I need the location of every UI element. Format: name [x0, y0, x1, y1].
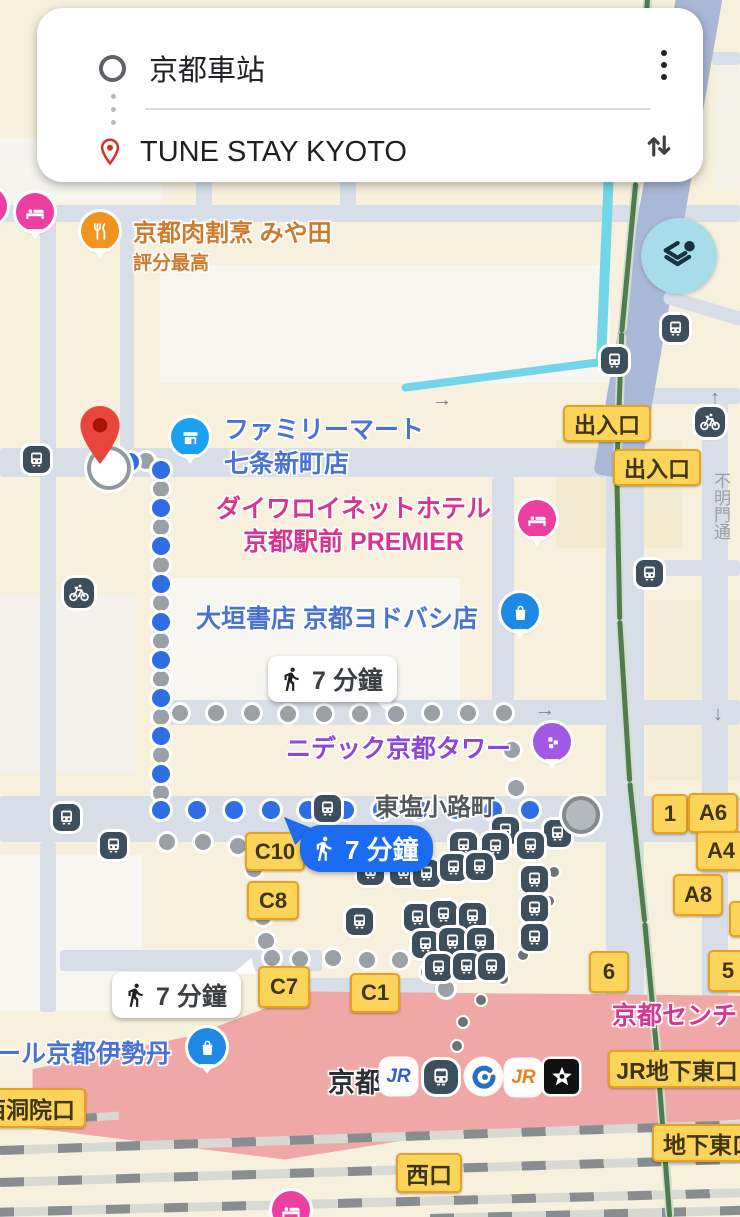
route-dot-alt [153, 709, 169, 725]
route-dot-alt [438, 981, 454, 997]
tower-pin[interactable] [533, 723, 571, 769]
route-dot-selected [152, 575, 170, 593]
railway-track [430, 1206, 740, 1217]
route-dot-alt [359, 952, 375, 968]
origin-row[interactable]: 京都車站 [37, 38, 703, 98]
bus-stop-icon[interactable] [100, 832, 127, 859]
gate-badge-c1[interactable]: C1 [350, 973, 400, 1013]
bus-stop-icon[interactable] [521, 866, 548, 893]
destination-input[interactable]: TUNE STAY KYOTO [140, 136, 407, 169]
hotel-pin-bottom-icon [272, 1191, 310, 1217]
route-dot-alt [195, 834, 211, 850]
route-dot-selected [225, 801, 243, 819]
route-dot-alt-small [476, 995, 486, 1005]
waypoint-dots [111, 94, 116, 125]
gate-badge-entrance-1[interactable]: 出入口 [563, 405, 651, 442]
road [340, 176, 356, 222]
route-dot-alt [258, 933, 274, 949]
gate-badge-underground-east-exit[interactable]: 地下東口 [652, 1124, 740, 1162]
poi-convenience-label[interactable]: ファミリーマート 七条新町店 [224, 414, 424, 482]
gate-badge-c7[interactable]: C7 [258, 966, 310, 1008]
road [712, 52, 740, 65]
route-dot-alt [352, 706, 368, 722]
route-dot-alt-small [549, 867, 559, 877]
route-dot-selected [521, 801, 539, 819]
bus-stop-icon[interactable] [23, 446, 50, 473]
one-way-arrow-icon: ↓ [713, 704, 723, 724]
route-dot-alt [496, 705, 512, 721]
gate-badge-entrance-2[interactable]: 出入口 [613, 449, 701, 486]
route-dot-alt [153, 671, 169, 687]
one-way-arrow-icon: ↑ [710, 388, 720, 408]
route-dot-selected [152, 613, 170, 631]
destination-row[interactable]: TUNE STAY KYOTO [37, 122, 703, 182]
train-icon[interactable] [424, 1060, 458, 1094]
bus-stop-icon[interactable] [430, 901, 457, 928]
jr-tokai-logo[interactable]: JR [506, 1060, 541, 1095]
walk-time-badge-bottom[interactable]: 7 分鐘 [112, 972, 241, 1018]
bus-stop-icon[interactable] [636, 560, 663, 587]
hotel-pin-bottom[interactable] [272, 1191, 310, 1217]
poi-department-store-label[interactable]: ール京都伊勢丹 [0, 1034, 171, 1070]
bus-stop-icon[interactable] [459, 903, 486, 930]
route-dot-selected [152, 461, 170, 479]
destination-pin[interactable] [76, 404, 124, 468]
walk-icon [310, 835, 337, 862]
route-dot-alt [325, 950, 341, 966]
gate-badge-stop-6[interactable]: 6 [589, 951, 629, 993]
route-dot-alt [159, 834, 175, 850]
route-dot-alt [292, 951, 308, 967]
map-layers-button[interactable] [641, 218, 717, 294]
poi-tower-label[interactable]: ニデック京都タワー [286, 729, 511, 765]
route-dot-alt [316, 706, 332, 722]
route-dot-alt-small [458, 1017, 468, 1027]
route-dot-alt [172, 705, 188, 721]
station-name-label[interactable]: 京都 [328, 1061, 382, 1100]
route-dot-alt-small [518, 950, 528, 960]
route-dot-alt [153, 747, 169, 763]
bus-stop-icon[interactable] [521, 895, 548, 922]
route-dot-selected [152, 651, 170, 669]
hotel-pin-daiwa[interactable] [518, 500, 556, 546]
gate-badge-jr-underground-east-exit[interactable]: JR地下東口 [608, 1050, 740, 1088]
bus-stop-icon[interactable] [53, 804, 80, 831]
bus-stop-icon[interactable] [425, 954, 452, 981]
road [492, 477, 514, 705]
gate-badge-c8[interactable]: C8 [247, 881, 299, 920]
bicycle-parking-icon[interactable] [695, 407, 725, 437]
bicycle-parking-icon[interactable] [64, 578, 94, 608]
street-name-label: 不明門通 [708, 472, 733, 540]
bus-stop-icon[interactable] [478, 953, 505, 980]
bus-stop-icon[interactable] [314, 795, 341, 822]
gate-badge-stop-5[interactable]: 5 [708, 950, 740, 992]
kyoto-subway-logo[interactable] [466, 1059, 501, 1094]
one-way-arrow-icon: → [535, 700, 555, 720]
route-dot-selected [152, 727, 170, 745]
card-divider [145, 108, 651, 110]
bus-stop-icon[interactable] [601, 347, 628, 374]
poi-restaurant-label[interactable]: 京都肉割烹 みや田 評分最高 [133, 213, 332, 276]
convenience-store-pin[interactable] [171, 418, 209, 464]
jr-west-logo[interactable]: JR [381, 1059, 416, 1094]
hotel-pin-daiwa-icon [518, 500, 556, 538]
route-dot-selected [262, 801, 280, 819]
hotel-pin-topleft-icon [16, 193, 54, 231]
bus-stop-icon[interactable] [404, 904, 431, 931]
convenience-store-pin-icon [171, 418, 209, 456]
bus-stop-icon[interactable] [440, 854, 467, 881]
poi-restaurant-rating: 評分最高 [133, 253, 209, 274]
bus-stop-icon[interactable] [439, 928, 466, 955]
route-origin-circle [562, 796, 600, 834]
route-dot-alt [153, 595, 169, 611]
route-dot-alt-small [452, 1041, 462, 1051]
bus-stop-icon[interactable] [466, 853, 493, 880]
hotel-pin-topleft[interactable] [16, 193, 54, 239]
google-maps-directions-screen: →→↓↑出入口出入口C10C8C7C11A6A4A865JR地下東口地下東口西口… [0, 0, 740, 1217]
walk-icon [278, 666, 304, 692]
kintetsu-logo[interactable] [544, 1059, 579, 1094]
restaurant-pin-icon [81, 212, 119, 250]
more-options-icon[interactable] [657, 46, 671, 84]
route-dot-alt [153, 557, 169, 573]
bookstore-pin-icon [501, 593, 539, 631]
gate-badge-west-exit[interactable]: 西口 [396, 1153, 462, 1193]
route-dot-alt [264, 950, 280, 966]
route-dot-selected [188, 801, 206, 819]
department-store-pin[interactable] [188, 1028, 226, 1074]
hotel-pin-edge-icon [0, 187, 7, 225]
route-dot-selected [152, 801, 170, 819]
walk-time-badge-mid[interactable]: 7 分鐘 [268, 656, 397, 702]
walk-time-badge-selected[interactable]: 7 分鐘 [300, 825, 433, 872]
bus-stop-icon[interactable] [467, 928, 494, 955]
route-dot-alt [424, 705, 440, 721]
department-store-pin-icon [188, 1028, 226, 1066]
gate-badge-stop-1[interactable]: 1 [652, 794, 688, 834]
route-dot-alt [153, 481, 169, 497]
route-dot-alt [230, 838, 246, 854]
route-dot-alt [153, 633, 169, 649]
route-dot-selected [152, 537, 170, 555]
origin-input[interactable]: 京都車站 [149, 47, 265, 89]
bus-stop-icon[interactable] [662, 315, 689, 342]
restaurant-pin[interactable] [81, 212, 119, 258]
railway-track [0, 1154, 740, 1187]
route-dot-selected [152, 499, 170, 517]
bus-stop-icon[interactable] [521, 924, 548, 951]
bus-stop-icon[interactable] [346, 908, 373, 935]
route-dot-alt [280, 706, 296, 722]
route-dot-selected [152, 765, 170, 783]
building-block [716, 62, 740, 190]
bus-stop-icon[interactable] [453, 953, 480, 980]
district-label: 東塩小路町 [375, 787, 495, 822]
gate-badge-partial[interactable] [729, 901, 740, 937]
route-dot-alt [153, 785, 169, 801]
swap-origin-destination-icon[interactable] [641, 128, 677, 164]
route-dot-alt [208, 705, 224, 721]
building-block [0, 595, 136, 773]
poi-century-hotel-label[interactable]: 京都センチ [612, 996, 737, 1032]
road [40, 205, 56, 805]
destination-pin-icon [95, 137, 125, 167]
poi-hotel-label[interactable]: ダイワロイネットホテル 京都駅前 PREMIER [216, 493, 491, 558]
route-dot-alt [244, 705, 260, 721]
route-dot-alt [460, 705, 476, 721]
gate-badge-stop-a4[interactable]: A4 [696, 831, 740, 871]
route-dot-selected [152, 689, 170, 707]
route-dot-alt [153, 519, 169, 535]
gate-badge-nishinotoin-exit[interactable]: 西洞院口 [0, 1088, 86, 1128]
one-way-arrow-icon: → [432, 390, 452, 410]
bus-stop-icon[interactable] [517, 832, 544, 859]
route-dot-alt [508, 780, 524, 796]
directions-card: 京都車站 TUNE STAY KYOTO [37, 8, 703, 182]
gate-badge-stop-a8[interactable]: A8 [673, 874, 723, 916]
origin-circle-icon [99, 55, 126, 82]
route-dot-alt [392, 952, 408, 968]
route-dot-alt [388, 706, 404, 722]
hotel-pin-edge[interactable] [0, 187, 7, 233]
tower-pin-icon [533, 723, 571, 761]
road [40, 842, 56, 1012]
walk-icon [122, 982, 148, 1008]
gate-badge-stop-a6[interactable]: A6 [688, 793, 738, 833]
bookstore-pin[interactable] [501, 593, 539, 639]
poi-bookstore-label[interactable]: 大垣書店 京都ヨドバシ店 [196, 599, 478, 635]
